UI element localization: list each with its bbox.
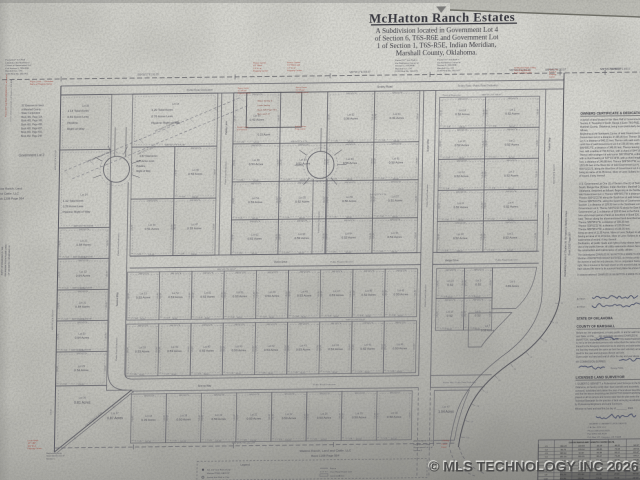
svg-text:© MLS TECHNOLOGY INC 2026: © MLS TECHNOLOGY INC 2026 (429, 459, 639, 475)
